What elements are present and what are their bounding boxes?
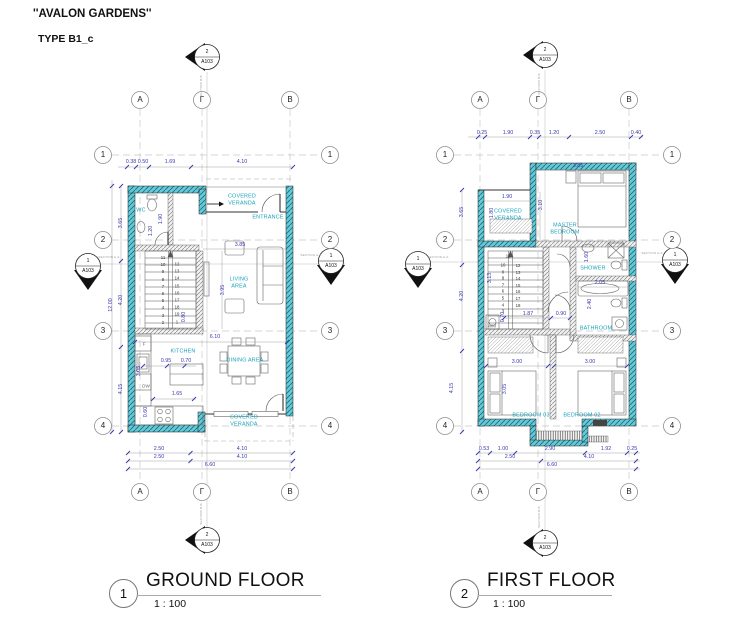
gf-veranda-edges [205,187,286,414]
gf-section-markers [74,43,345,554]
ff-furniture [486,171,628,415]
gf-sliding-doors [214,412,278,417]
ground-floor-view-number: 1 [109,579,138,608]
first-floor-title-rule [478,595,612,596]
floor-plan-sheet: ''AVALON GARDENS'' TYPE B1_c [0,0,750,629]
first-floor-scale: 1 : 100 [493,598,525,610]
first-floor-view-number: 2 [450,579,479,608]
ground-floor-title-rule [137,595,321,596]
ff-vent-unit [593,420,607,426]
ff-railing [588,436,608,442]
ground-floor-title: GROUND FLOOR [146,570,305,592]
ff-balcony-steps [536,431,582,440]
gf-furniture [135,195,283,425]
first-floor-title: FIRST FLOOR [487,570,616,592]
floorplan-drawing [0,0,750,629]
gf-section-lines [80,72,345,528]
ground-floor-scale: 1 : 100 [154,598,186,610]
gf-doors [155,194,283,411]
ff-stairs [488,251,543,329]
first-floor-drawing [404,41,689,557]
ground-floor-drawing [74,43,345,554]
gf-stairs [145,251,196,329]
gf-entrance-arrow [207,202,224,207]
gf-roof-dashed [205,179,293,441]
